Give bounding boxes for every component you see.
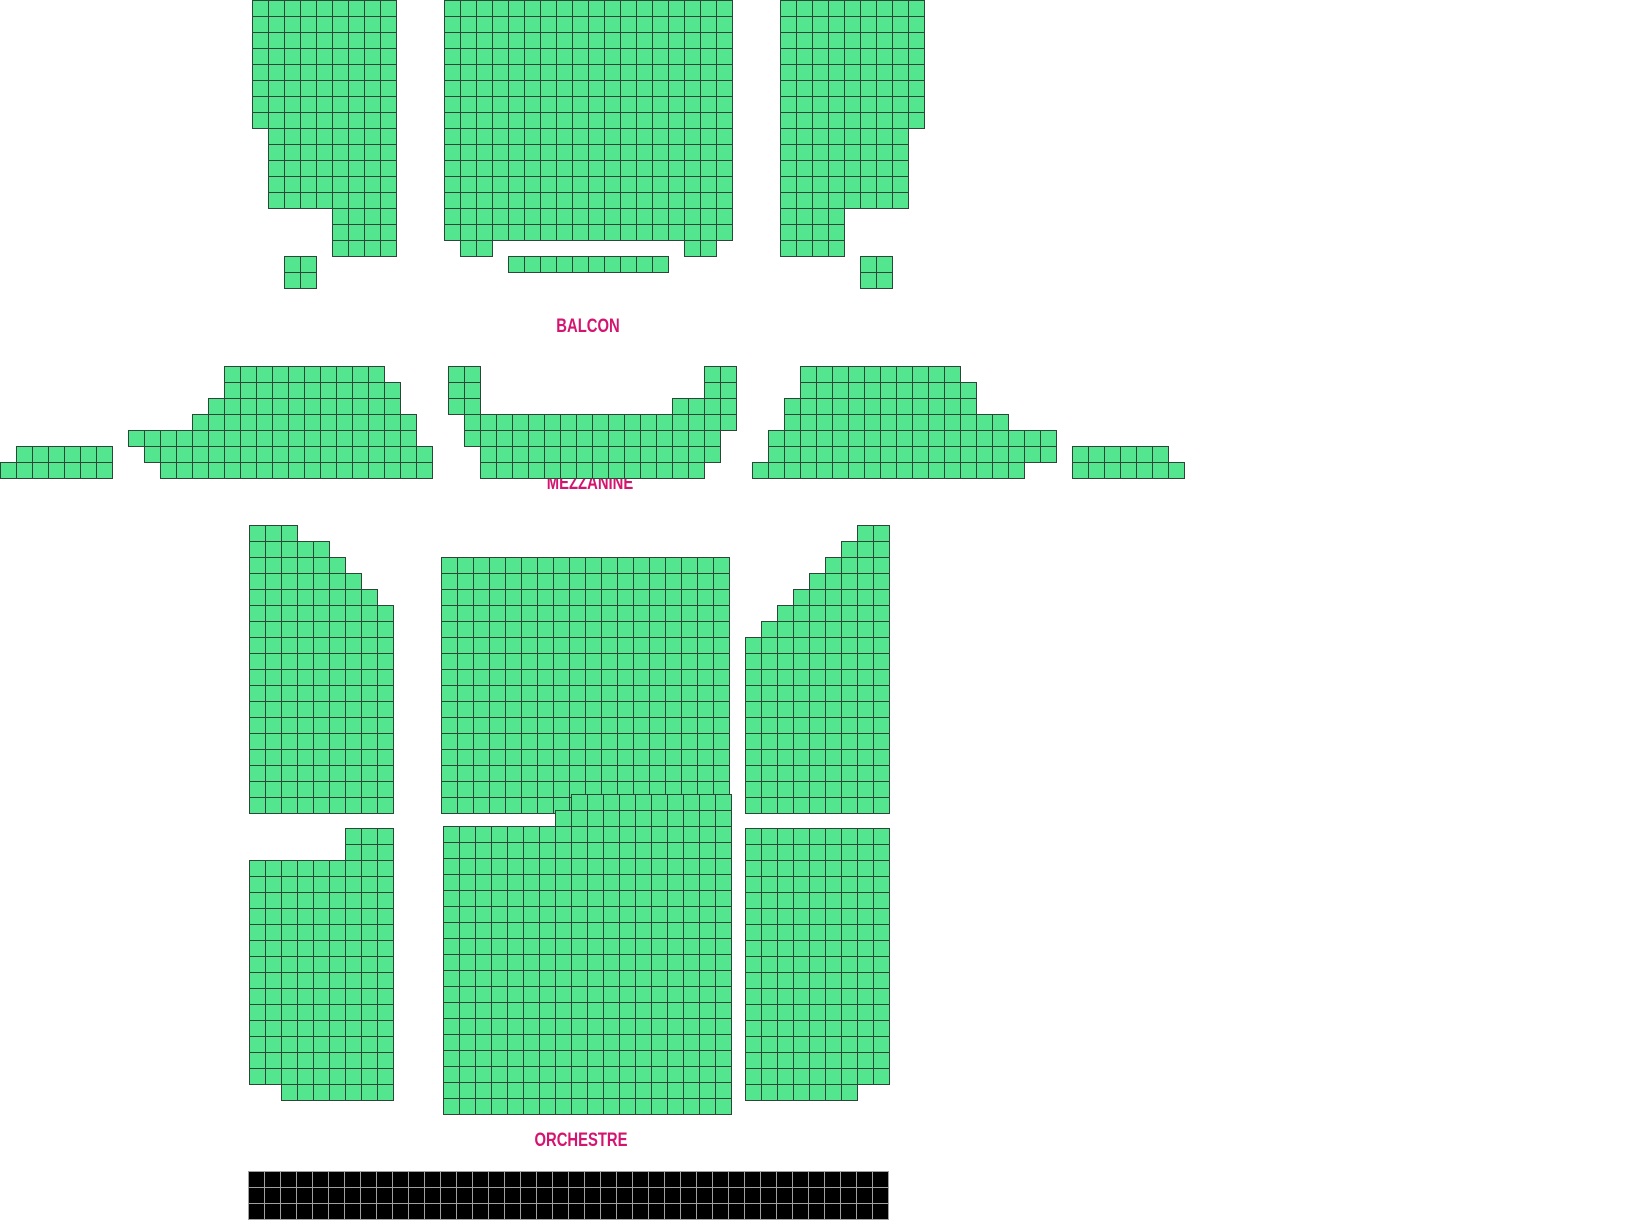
mezzanine-center-seat-row[interactable] — [464, 414, 737, 431]
orchestre-lower-right-seat-row[interactable] — [745, 988, 890, 1005]
orchestre-upper-left-seat-row[interactable] — [249, 589, 378, 606]
orchestre-lower-center-seat-row[interactable] — [443, 938, 732, 955]
orchestre-lower-left-seat-row[interactable] — [249, 988, 394, 1005]
mezzanine-far-left-seat-row[interactable] — [16, 446, 113, 463]
orchestre-lower-right-seat-row[interactable] — [745, 1084, 858, 1101]
orchestre-lower-left-seat-row[interactable] — [345, 828, 394, 845]
orchestre-upper-right-seat-row[interactable] — [745, 653, 890, 670]
balcon-center-seat-row[interactable] — [444, 80, 733, 97]
mezzanine-center-seat-row[interactable] — [704, 366, 737, 383]
orchestre-lower-left-seat-row[interactable] — [249, 1020, 394, 1037]
orchestre-upper-center-seat-row[interactable] — [441, 637, 730, 654]
balcon-left-seat-row[interactable] — [284, 256, 317, 273]
orchestre-upper-left-seat-row[interactable] — [249, 557, 346, 574]
orchestre-lower-right-seat-row[interactable] — [745, 1036, 890, 1053]
orchestre-lower-right-seat-row[interactable] — [745, 1004, 890, 1021]
balcon-right-seat-row[interactable] — [780, 192, 909, 209]
orchestre-section-label: ORCHESTRE — [534, 1132, 627, 1149]
orchestre-lower-center-seat-row[interactable] — [443, 1098, 732, 1115]
orchestre-upper-left-seat-row[interactable] — [249, 669, 394, 686]
mezzanine-right-seat-row[interactable] — [784, 414, 1009, 431]
orchestre-upper-left-seat-row[interactable] — [249, 765, 394, 782]
orchestre-upper-center-seat-row[interactable] — [441, 557, 730, 574]
balcon-right-seat-row[interactable] — [860, 256, 893, 273]
orchestre-upper-center-seat-row[interactable] — [441, 573, 730, 590]
mezzanine-center-seat-row[interactable] — [464, 430, 721, 447]
balcon-left-seat-row[interactable] — [332, 240, 397, 257]
mezzanine-center-seat-row[interactable] — [480, 446, 721, 463]
orchestre-lower-left-seat-row[interactable] — [249, 956, 394, 973]
mezzanine-center-seat-row[interactable] — [448, 382, 481, 399]
orchestre-lower-center-seat-row[interactable] — [443, 1018, 732, 1035]
balcon-right-seat-row[interactable] — [780, 160, 909, 177]
orchestre-lower-left-seat-row[interactable] — [249, 876, 394, 893]
orchestre-lower-left-seat-row[interactable] — [249, 1036, 394, 1053]
orchestre-lower-center-seat-row[interactable] — [443, 1050, 732, 1067]
orchestre-lower-center-seat-row[interactable] — [443, 986, 732, 1003]
balcon-right-seat-row[interactable] — [780, 80, 925, 97]
orchestre-upper-right-seat-row[interactable] — [777, 605, 890, 622]
balcon-left-seat-row[interactable] — [252, 32, 397, 49]
orchestre-upper-center-seat-row[interactable] — [441, 589, 730, 606]
orchestre-lower-center-seat-row[interactable] — [443, 906, 732, 923]
balcon-center-seat-row[interactable] — [444, 48, 733, 65]
orchestre-upper-left-seat-row[interactable] — [249, 733, 394, 750]
orchestre-lower-right-seat-row[interactable] — [745, 908, 890, 925]
balcon-left-seat-row[interactable] — [268, 160, 397, 177]
balcon-center-seat-row[interactable] — [444, 0, 733, 17]
orchestre-upper-left-seat-row[interactable] — [249, 637, 394, 654]
orchestre-upper-center-seat-row[interactable] — [441, 717, 730, 734]
orchestre-lower-left-seat-row[interactable] — [249, 908, 394, 925]
mezzanine-right-seat-row[interactable] — [800, 366, 961, 383]
mezzanine-left-seat-row[interactable] — [160, 462, 433, 479]
mezzanine-left-seat-row[interactable] — [224, 366, 385, 383]
orchestre-lower-right-seat-row[interactable] — [745, 844, 890, 861]
orchestre-lower-left-seat-row[interactable] — [249, 924, 394, 941]
mezzanine-right-seat-row[interactable] — [800, 382, 977, 399]
orchestre-lower-right-seat-row[interactable] — [745, 972, 890, 989]
orchestre-lower-center-seat-row[interactable] — [443, 970, 732, 987]
orchestre-lower-left-seat-row[interactable] — [281, 1084, 394, 1101]
balcon-center-seat-row[interactable] — [444, 32, 733, 49]
mezzanine-right-seat-row[interactable] — [784, 398, 977, 415]
orchestre-upper-right-seat-row[interactable] — [745, 717, 890, 734]
orchestre-lower-center-seat-row[interactable] — [443, 922, 732, 939]
balcon-left-seat-row[interactable] — [332, 224, 397, 241]
orchestre-upper-right-seat-row[interactable] — [841, 541, 890, 558]
balcon-center-seat-row[interactable] — [444, 16, 733, 33]
mezzanine-right-seat-row[interactable] — [768, 446, 1057, 463]
balcon-section-label: BALCON — [556, 318, 619, 335]
orchestre-lower-center-seat-row[interactable] — [443, 842, 732, 859]
orchestre-lower-left-seat-row[interactable] — [345, 844, 394, 861]
balcon-center-seat-row[interactable] — [508, 256, 669, 273]
orchestre-upper-right-seat-row[interactable] — [745, 685, 890, 702]
orchestre-upper-right-seat-row[interactable] — [745, 637, 890, 654]
balcon-right-seat-row[interactable] — [780, 176, 909, 193]
balcon-right-seat-row[interactable] — [780, 112, 925, 129]
mezzanine-right-seat-row[interactable] — [752, 462, 1025, 479]
orchestre-upper-left-seat-row[interactable] — [249, 525, 298, 542]
balcon-center-seat-row[interactable] — [444, 112, 733, 129]
orchestre-lower-right-seat-row[interactable] — [745, 828, 890, 845]
balcon-left-seat-row[interactable] — [252, 0, 397, 17]
mezzanine-far-right-seat-row[interactable] — [1072, 462, 1185, 479]
mezzanine-left-seat-row[interactable] — [144, 446, 433, 463]
mezzanine-left-seat-row[interactable] — [128, 430, 417, 447]
orchestre-upper-right-seat-row[interactable] — [745, 765, 890, 782]
mezzanine-center-seat-row[interactable] — [480, 462, 705, 479]
orchestre-upper-left-seat-row[interactable] — [249, 541, 330, 558]
mezzanine-center-seat-row[interactable] — [448, 366, 481, 383]
orchestre-lower-right-seat-row[interactable] — [745, 892, 890, 909]
balcon-right-seat-row[interactable] — [780, 64, 925, 81]
orchestre-lower-left-seat-row[interactable] — [249, 972, 394, 989]
balcon-left-seat-row[interactable] — [252, 16, 397, 33]
orchestre-upper-center-seat-row[interactable] — [441, 669, 730, 686]
orchestre-lower-right-seat-row[interactable] — [745, 1020, 890, 1037]
orchestre-lower-center-seat-row[interactable] — [443, 1066, 732, 1083]
stage — [248, 1171, 889, 1220]
balcon-center-seat-row[interactable] — [444, 128, 733, 145]
orchestre-upper-left-seat-row[interactable] — [249, 653, 394, 670]
orchestre-upper-left-seat-row[interactable] — [249, 605, 394, 622]
balcon-center-seat-row[interactable] — [444, 224, 733, 241]
balcon-right-seat-row[interactable] — [780, 96, 925, 113]
orchestre-lower-left-seat-row[interactable] — [249, 1052, 394, 1069]
orchestre-upper-center-seat-row[interactable] — [441, 621, 730, 638]
balcon-right-seat-row[interactable] — [780, 144, 909, 161]
orchestre-upper-left-seat-row[interactable] — [249, 717, 394, 734]
orchestre-upper-center-seat-row[interactable] — [441, 765, 730, 782]
orchestre-upper-right-seat-row[interactable] — [745, 701, 890, 718]
balcon-right-seat-row[interactable] — [780, 208, 845, 225]
balcon-center-seat-row[interactable] — [444, 96, 733, 113]
orchestre-lower-left-seat-row[interactable] — [249, 860, 394, 877]
balcon-center-seat-row[interactable] — [444, 160, 733, 177]
orchestre-upper-center-seat-row[interactable] — [441, 685, 730, 702]
orchestre-lower-right-seat-row[interactable] — [745, 940, 890, 957]
orchestre-lower-right-seat-row[interactable] — [745, 956, 890, 973]
orchestre-lower-center-seat-row[interactable] — [443, 858, 732, 875]
balcon-left-seat-row[interactable] — [252, 96, 397, 113]
balcon-right-seat-row[interactable] — [780, 128, 909, 145]
balcon-center-seat-row[interactable] — [444, 176, 733, 193]
balcon-right-seat-row[interactable] — [780, 240, 845, 257]
orchestre-upper-left-seat-row[interactable] — [249, 701, 394, 718]
orchestre-upper-right-seat-row[interactable] — [745, 669, 890, 686]
orchestre-lower-left-seat-row[interactable] — [249, 892, 394, 909]
orchestre-upper-left-seat-row[interactable] — [249, 749, 394, 766]
mezzanine-center-seat-row[interactable] — [448, 398, 481, 415]
balcon-right-seat-row[interactable] — [780, 16, 925, 33]
orchestre-upper-right-seat-row[interactable] — [745, 749, 890, 766]
balcon-left-seat-row[interactable] — [268, 176, 397, 193]
orchestre-lower-right-seat-row[interactable] — [745, 860, 890, 877]
orchestre-upper-left-seat-row[interactable] — [249, 797, 394, 814]
balcon-center-seat-row[interactable] — [444, 144, 733, 161]
orchestre-upper-right-seat-row[interactable] — [745, 797, 890, 814]
seat-map: BALCON MEZZANINE ORCHESTRE — [0, 0, 1626, 1220]
orchestre-lower-center-seat-row[interactable] — [443, 826, 732, 843]
balcon-center-seat-row[interactable] — [684, 240, 717, 257]
orchestre-lower-center-seat-row[interactable] — [443, 1034, 732, 1051]
balcon-left-seat-row[interactable] — [252, 48, 397, 65]
balcon-left-seat-row[interactable] — [252, 64, 397, 81]
orchestre-lower-right-seat-row[interactable] — [745, 876, 890, 893]
mezzanine-left-seat-row[interactable] — [192, 414, 417, 431]
balcon-left-seat-row[interactable] — [284, 272, 317, 289]
orchestre-lower-center-seat-row[interactable] — [443, 874, 732, 891]
orchestre-lower-right-seat-row[interactable] — [745, 1068, 890, 1085]
orchestre-upper-center-seat-row[interactable] — [441, 733, 730, 750]
balcon-left-seat-row[interactable] — [268, 144, 397, 161]
mezzanine-far-left-seat-row[interactable] — [0, 462, 113, 479]
orchestre-upper-right-seat-row[interactable] — [745, 781, 890, 798]
orchestre-upper-center-seat-row[interactable] — [441, 653, 730, 670]
balcon-left-seat-row[interactable] — [268, 128, 397, 145]
orchestre-upper-left-seat-row[interactable] — [249, 781, 394, 798]
balcon-right-seat-row[interactable] — [780, 0, 925, 17]
orchestre-lower-center-seat-row[interactable] — [443, 1082, 732, 1099]
orchestre-lower-center-seat-row[interactable] — [571, 794, 732, 811]
orchestre-lower-right-seat-row[interactable] — [745, 924, 890, 941]
orchestre-lower-center-seat-row[interactable] — [443, 1002, 732, 1019]
balcon-center-seat-row[interactable] — [460, 240, 493, 257]
mezzanine-far-right-seat-row[interactable] — [1072, 446, 1169, 463]
mezzanine-left-seat-row[interactable] — [224, 382, 401, 399]
mezzanine-center-seat-row[interactable] — [672, 398, 737, 415]
orchestre-upper-left-seat-row[interactable] — [249, 621, 394, 638]
orchestre-lower-left-seat-row[interactable] — [249, 940, 394, 957]
orchestre-upper-right-seat-row[interactable] — [857, 525, 890, 542]
orchestre-upper-right-seat-row[interactable] — [825, 557, 890, 574]
orchestre-lower-center-seat-row[interactable] — [443, 890, 732, 907]
balcon-center-seat-row[interactable] — [444, 208, 733, 225]
balcon-center-seat-row[interactable] — [444, 64, 733, 81]
orchestre-upper-right-seat-row[interactable] — [793, 589, 890, 606]
balcon-left-seat-row[interactable] — [252, 112, 397, 129]
orchestre-lower-left-seat-row[interactable] — [249, 1068, 394, 1085]
orchestre-upper-center-seat-row[interactable] — [441, 749, 730, 766]
orchestre-lower-center-seat-row[interactable] — [555, 810, 732, 827]
balcon-center-seat-row[interactable] — [444, 192, 733, 209]
orchestre-upper-center-seat-row[interactable] — [441, 701, 730, 718]
balcon-right-seat-row[interactable] — [780, 224, 845, 241]
balcon-left-seat-row[interactable] — [332, 208, 397, 225]
mezzanine-left-seat-row[interactable] — [208, 398, 401, 415]
orchestre-upper-right-seat-row[interactable] — [809, 573, 890, 590]
orchestre-upper-right-seat-row[interactable] — [745, 733, 890, 750]
orchestre-lower-left-seat-row[interactable] — [249, 1004, 394, 1021]
orchestre-lower-right-seat-row[interactable] — [745, 1052, 890, 1069]
mezzanine-right-seat-row[interactable] — [768, 430, 1057, 447]
balcon-left-seat-row[interactable] — [252, 80, 397, 97]
orchestre-upper-right-seat-row[interactable] — [761, 621, 890, 638]
balcon-right-seat-row[interactable] — [780, 32, 925, 49]
balcon-right-seat-row[interactable] — [780, 48, 925, 65]
orchestre-upper-left-seat-row[interactable] — [249, 573, 362, 590]
orchestre-upper-center-seat-row[interactable] — [441, 605, 730, 622]
orchestre-lower-center-seat-row[interactable] — [443, 954, 732, 971]
balcon-left-seat-row[interactable] — [268, 192, 397, 209]
orchestre-upper-left-seat-row[interactable] — [249, 685, 394, 702]
mezzanine-center-seat-row[interactable] — [704, 382, 737, 399]
balcon-right-seat-row[interactable] — [860, 272, 893, 289]
